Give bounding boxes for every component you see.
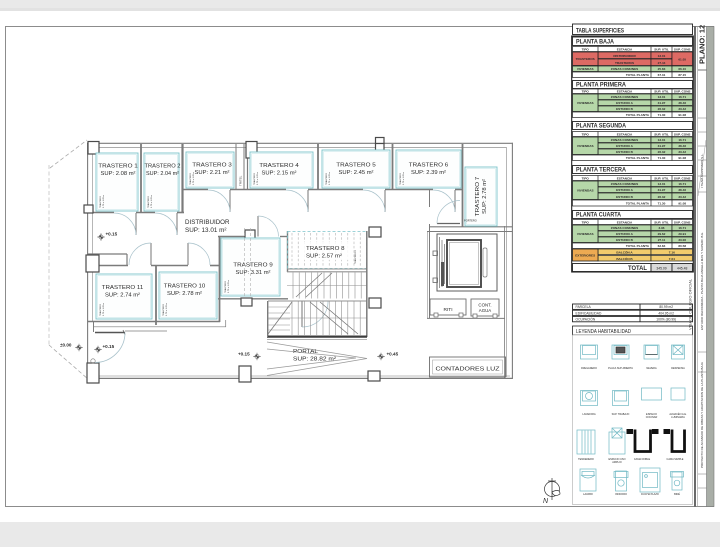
svg-text:SUP. CONS: SUP. CONS <box>674 176 691 180</box>
svg-text:71.30: 71.30 <box>658 113 666 117</box>
svg-text:TRASTERO 7: TRASTERO 7 <box>475 177 481 217</box>
svg-text:+0.45: +0.45 <box>387 352 399 357</box>
svg-text:ZONAS COMUNES: ZONAS COMUNES <box>611 226 639 230</box>
svg-text:ZONAS COMUNES: ZONAS COMUNES <box>611 182 639 186</box>
svg-text:7.16: 7.16 <box>669 250 675 254</box>
svg-text:7.64: 7.64 <box>669 257 675 261</box>
svg-text:13.01: 13.01 <box>658 95 666 99</box>
svg-text:TRASTERO: TRASTERO <box>147 196 150 208</box>
svg-text:345.09: 345.09 <box>656 267 666 271</box>
svg-text:ESTANCIA: ESTANCIA <box>617 89 633 93</box>
svg-text:TRASTERO: TRASTERO <box>325 173 328 185</box>
svg-text:SUP. UTIL: SUP. UTIL <box>654 176 669 180</box>
svg-text:ESTUDIO A: ESTUDIO A <box>616 188 633 192</box>
svg-text:29.91: 29.91 <box>678 232 686 236</box>
svg-text:27.44: 27.44 <box>658 61 666 65</box>
svg-text:1.70 x 1.20 m: 1.70 x 1.20 m <box>166 303 168 316</box>
svg-text:ESTUDIO B: ESTUDIO B <box>616 238 634 242</box>
svg-text:66.10: 66.10 <box>678 67 686 71</box>
svg-text:TRASTERO 8: TRASTERO 8 <box>306 246 345 252</box>
svg-text:ESTUDIO B: ESTUDIO B <box>616 195 634 199</box>
svg-text:1.70 x 1.20 m: 1.70 x 1.20 m <box>151 195 153 208</box>
svg-text:SUP: 3.31 m²: SUP: 3.31 m² <box>236 270 271 276</box>
svg-text:SUP. UTIL: SUP. UTIL <box>654 132 669 136</box>
svg-text:TRASTERO 6: TRASTERO 6 <box>409 163 449 169</box>
svg-text:RITI: RITI <box>443 307 452 313</box>
svg-text:1.70 x 1.20 m: 1.70 x 1.20 m <box>193 172 195 185</box>
svg-text:ESTUDIO B: ESTUDIO B <box>616 107 634 111</box>
svg-text:+0.15: +0.15 <box>106 232 118 237</box>
svg-text:TRASTERO: TRASTERO <box>99 304 102 316</box>
svg-text:ESTUDIO B: ESTUDIO B <box>616 150 634 154</box>
svg-text:80.99 m2: 80.99 m2 <box>659 305 673 309</box>
svg-text:TENDEDERO: TENDEDERO <box>578 458 594 461</box>
svg-text:26.32: 26.32 <box>658 107 666 111</box>
svg-text:SUP: 2.08 m²: SUP: 2.08 m² <box>101 171 136 177</box>
svg-text:ESTUDIO A: ESTUDIO A <box>616 144 633 148</box>
svg-text:SUP: 2.78 m²: SUP: 2.78 m² <box>482 179 488 214</box>
svg-text:TIPO: TIPO <box>582 176 590 180</box>
svg-text:38.46: 38.46 <box>678 188 686 192</box>
svg-text:TIPO: TIPO <box>582 220 590 224</box>
svg-text:100% (80.99): 100% (80.99) <box>656 318 676 322</box>
svg-text:TRASTERO 9: TRASTERO 9 <box>233 263 273 269</box>
svg-text:ESTANCIA: ESTANCIA <box>617 176 633 180</box>
svg-text:25.83: 25.83 <box>658 67 666 71</box>
svg-text:33.42: 33.42 <box>678 107 686 111</box>
svg-text:TOTAL PLANTA: TOTAL PLANTA <box>626 156 650 160</box>
svg-text:SUP. CONS: SUP. CONS <box>674 89 691 93</box>
svg-text:TRASTERO 3: TRASTERO 3 <box>192 163 232 169</box>
svg-text:TRASTERO: TRASTERO <box>189 173 192 185</box>
svg-text:EDIFICABILIDAD: EDIFICABILIDAD <box>576 311 602 315</box>
svg-text:+0.15: +0.15 <box>103 344 115 349</box>
svg-text:TOTAL PLANTA: TOTAL PLANTA <box>626 244 650 248</box>
svg-text:ESTANCIA: ESTANCIA <box>617 47 633 51</box>
svg-text:1.70 x 1.20 m: 1.70 x 1.20 m <box>228 280 230 293</box>
svg-text:DISTRIBUIDOR: DISTRIBUIDOR <box>185 220 230 226</box>
svg-text:AMPLIO: AMPLIO <box>612 461 622 464</box>
svg-text:VIVIENDAS: VIVIENDAS <box>577 67 594 71</box>
svg-text:LAVABO: LAVABO <box>583 493 593 496</box>
svg-text:1.70 x 1.20 m: 1.70 x 1.20 m <box>329 172 331 185</box>
svg-text:62.84: 62.84 <box>658 244 666 248</box>
svg-text:LAVADORA: LAVADORA <box>582 413 596 416</box>
svg-text:SUP. CONS: SUP. CONS <box>674 220 691 224</box>
svg-text:TOTAL PLANTA: TOTAL PLANTA <box>626 73 650 77</box>
svg-text:PLANTA CUARTA: PLANTA CUARTA <box>576 212 621 219</box>
svg-text:PLANTA TERCERA: PLANTA TERCERA <box>576 167 626 174</box>
svg-text:OCUPACIÓN: OCUPACIÓN <box>576 317 596 322</box>
svg-text:ZONAS COMUNES: ZONAS COMUNES <box>611 95 639 99</box>
svg-text:13.01: 13.01 <box>658 138 666 142</box>
svg-text:38.46: 38.46 <box>678 144 686 148</box>
svg-text:AGUA: AGUA <box>479 308 492 313</box>
svg-text:87.15: 87.15 <box>678 73 686 77</box>
svg-text:+0.15: +0.15 <box>238 352 250 357</box>
svg-text:CAMA DOBLE: CAMA DOBLE <box>634 458 651 461</box>
svg-text:TIPO: TIPO <box>582 47 590 51</box>
svg-text:38.46: 38.46 <box>678 101 686 105</box>
svg-text:SUP: 2.78 m²: SUP: 2.78 m² <box>167 291 202 297</box>
svg-text:VIVIENDAS: VIVIENDAS <box>577 101 594 105</box>
svg-text:ESTUDIO A: ESTUDIO A <box>616 232 633 236</box>
svg-text:26.32: 26.32 <box>658 150 666 154</box>
svg-text:TRASTERO 2: TRASTERO 2 <box>145 163 181 169</box>
svg-text:SUP. CONS: SUP. CONS <box>674 132 691 136</box>
svg-text:SUP: 2.39 m²: SUP: 2.39 m² <box>411 170 446 176</box>
svg-text:13.01: 13.01 <box>658 54 666 58</box>
svg-text:TRASTERO 11: TRASTERO 11 <box>102 285 144 291</box>
svg-text:TRASTERO: TRASTERO <box>162 304 165 316</box>
svg-text:TRASTEROS: TRASTEROS <box>576 57 595 61</box>
svg-text:31.97: 31.97 <box>658 101 666 105</box>
svg-text:SUP. UTIL: SUP. UTIL <box>654 47 669 51</box>
svg-text:16.71: 16.71 <box>678 182 686 186</box>
svg-text:BALCÓN A: BALCÓN A <box>616 249 633 254</box>
svg-text:NEVERA: NEVERA <box>646 367 657 370</box>
svg-text:SUP: 2.45 m²: SUP: 2.45 m² <box>339 170 374 176</box>
svg-text:PLANTA PRIMERA: PLANTA PRIMERA <box>576 82 626 89</box>
svg-text:TIPO: TIPO <box>582 132 590 136</box>
svg-text:PORTERO: PORTERO <box>464 219 477 223</box>
svg-text:26.32: 26.32 <box>658 195 666 199</box>
svg-text:SUP. UTIL: SUP. UTIL <box>654 220 669 224</box>
svg-text:91.08: 91.08 <box>678 156 686 160</box>
svg-text:1.70 x 1.20 m: 1.70 x 1.20 m <box>103 195 105 208</box>
svg-text:COCINAR: COCINAR <box>646 416 658 419</box>
svg-text:SUP: 2.74 m²: SUP: 2.74 m² <box>105 293 140 299</box>
svg-text:1.70 x 1.20 m: 1.70 x 1.20 m <box>257 172 259 185</box>
svg-text:SUP: 2.15 m²: SUP: 2.15 m² <box>262 170 297 176</box>
svg-text:TRASTERO: TRASTERO <box>253 173 256 185</box>
svg-text:TRITEL: TRITEL <box>239 175 243 186</box>
svg-text:TIPO: TIPO <box>582 89 590 93</box>
svg-text:SUP. TRABAJO: SUP. TRABAJO <box>612 413 630 416</box>
svg-text:PLACA SUP ABIERTA: PLACA SUP ABIERTA <box>608 367 633 370</box>
svg-text:PLANTA SEGUNDA: PLANTA SEGUNDA <box>576 123 626 130</box>
svg-text:BALCÓN B: BALCÓN B <box>616 256 633 261</box>
svg-text:TRASTERO 4: TRASTERO 4 <box>259 163 299 169</box>
svg-text:SUP. CONS: SUP. CONS <box>674 47 691 51</box>
svg-text:CONTADORES LUZ: CONTADORES LUZ <box>436 367 501 373</box>
svg-text:VIVIENDAS: VIVIENDAS <box>577 144 594 148</box>
svg-text:LEYENDA HABITABILIDAD: LEYENDA HABITABILIDAD <box>576 329 631 335</box>
svg-text:ESTANCIA: ESTANCIA <box>617 220 633 224</box>
svg-text:445.48: 445.48 <box>677 267 687 271</box>
svg-text:ESTUDIO A: ESTUDIO A <box>616 101 633 105</box>
svg-text:PLANO: 12: PLANO: 12 <box>698 25 707 64</box>
svg-text:31.97: 31.97 <box>658 144 666 148</box>
svg-text:TOTAL PLANTA: TOTAL PLANTA <box>626 201 650 205</box>
svg-text:±0.00: ±0.00 <box>60 343 72 348</box>
svg-text:80.58: 80.58 <box>678 244 686 248</box>
svg-text:71.30: 71.30 <box>658 201 666 205</box>
svg-text:1.70 x 1.20 m: 1.70 x 1.20 m <box>403 172 405 185</box>
svg-text:LUMINARIA: LUMINARIA <box>671 416 685 419</box>
svg-text:ZONAS COMUNES: ZONAS COMUNES <box>611 67 639 71</box>
svg-text:91.08: 91.08 <box>678 113 686 117</box>
svg-text:TRASTERO: TRASTERO <box>99 196 102 208</box>
svg-text:404.95 m2: 404.95 m2 <box>658 311 674 315</box>
svg-text:VIVIENDAS: VIVIENDAS <box>577 232 594 236</box>
svg-text:67.31: 67.31 <box>658 73 666 77</box>
svg-text:PLANTA BAJA: PLANTA BAJA <box>576 39 614 46</box>
svg-text:FREGADERO: FREGADERO <box>581 367 597 370</box>
svg-text:CONT.: CONT. <box>478 303 491 308</box>
svg-text:BIDÉ: BIDÉ <box>674 493 680 496</box>
svg-text:SUP: 2.57 m²: SUP: 2.57 m² <box>306 254 342 260</box>
svg-text:71.30: 71.30 <box>658 156 666 160</box>
svg-text:VISADO COLEGIO OFICIAL: VISADO COLEGIO OFICIAL <box>688 278 693 330</box>
svg-text:PARCELA: PARCELA <box>576 305 592 309</box>
svg-text:91.08: 91.08 <box>678 201 686 205</box>
svg-text:PROYECTO DE ACABADO DE OBRAS Y: PROYECTO DE ACABADO DE OBRAS Y ADAPTACIO… <box>700 362 704 468</box>
svg-text:TRASTERO: TRASTERO <box>399 173 402 185</box>
svg-text:SUP: 13.01 m²: SUP: 13.01 m² <box>185 228 227 234</box>
svg-text:3.96: 3.96 <box>658 226 664 230</box>
svg-text:DUCHA PLAZO: DUCHA PLAZO <box>641 493 659 496</box>
svg-text:33.42: 33.42 <box>678 150 686 154</box>
svg-text:33.42: 33.42 <box>678 195 686 199</box>
svg-text:TABLA SUPERFICIES: TABLA SUPERFICIES <box>576 28 624 35</box>
svg-text:CAMA SIMPLE: CAMA SIMPLE <box>667 458 684 461</box>
svg-text:TRASTERO 10: TRASTERO 10 <box>164 284 206 290</box>
svg-text:TOTAL: TOTAL <box>628 266 647 272</box>
svg-text:29.62: 29.62 <box>658 232 666 236</box>
svg-text:13.01: 13.01 <box>658 182 666 186</box>
svg-text:SUP: 2.21 m²: SUP: 2.21 m² <box>195 170 230 176</box>
svg-text:TRASTERO 1: TRASTERO 1 <box>98 163 138 169</box>
svg-text:INODORO: INODORO <box>615 493 627 496</box>
svg-text:16.71: 16.71 <box>678 226 686 230</box>
svg-text:ESTUDIO REFORMADA - PLANTA BAJ: ESTUDIO REFORMADA - PLANTA BAJA ANGELA M… <box>700 232 704 330</box>
svg-text:TRASTEROS: TRASTEROS <box>615 61 634 65</box>
svg-text:ESTANCIA: ESTANCIA <box>617 132 633 136</box>
svg-text:ZONAS COMUNES: ZONAS COMUNES <box>611 138 639 142</box>
svg-text:1.70 x 1.20 m: 1.70 x 1.20 m <box>103 303 105 316</box>
svg-text:61.05: 61.05 <box>678 58 686 62</box>
svg-text:DISTRIBUIDOR: DISTRIBUIDOR <box>613 54 636 58</box>
svg-text:TRASTERO: TRASTERO <box>224 281 227 293</box>
svg-text:TRASTERO 8: TRASTERO 8 <box>354 249 357 264</box>
svg-text:27.11: 27.11 <box>658 238 666 242</box>
svg-text:EXTERIORES: EXTERIORES <box>575 253 595 257</box>
svg-text:16.71: 16.71 <box>678 95 686 99</box>
svg-text:16.71: 16.71 <box>678 138 686 142</box>
svg-text:TRASTERO 5: TRASTERO 5 <box>336 163 376 169</box>
svg-text:SUP. UTIL: SUP. UTIL <box>654 89 669 93</box>
svg-text:VIVIENDAS: VIVIENDAS <box>577 189 594 193</box>
svg-text:SUP: 2.04 m²: SUP: 2.04 m² <box>146 171 179 177</box>
svg-text:DESPENSA: DESPENSA <box>671 367 685 370</box>
svg-text:TOTAL PLANTA: TOTAL PLANTA <box>626 113 650 117</box>
svg-text:33.06: 33.06 <box>678 238 686 242</box>
svg-text:31.97: 31.97 <box>658 188 666 192</box>
